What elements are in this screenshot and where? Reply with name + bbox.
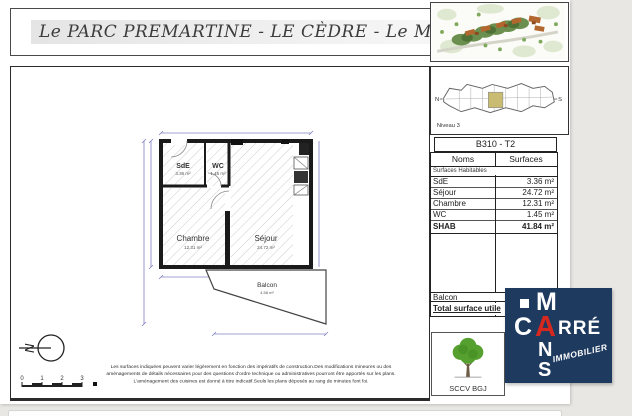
table-subheader: Surfaces Habitables	[431, 167, 557, 177]
logo-tagline: IMMOBILIER	[552, 342, 609, 364]
room-area-sejour: 24.72 m²	[257, 245, 275, 250]
room-area-balcon: 4.58 m²	[260, 290, 274, 295]
room-label-wc: WC	[212, 163, 224, 170]
table-row-shab: SHAB 41.84 m²	[431, 221, 557, 234]
scale-tick-3: 3	[80, 376, 84, 382]
wall-block	[281, 139, 289, 144]
floor-plan-drawing: SdE 3.36 m² WC 1.45 m² Chambre 12.31 m² …	[141, 119, 341, 349]
tree-logo-icon	[446, 335, 490, 381]
level-plan-box: N S Niveau 3	[430, 66, 569, 135]
scale-tick-2: 2	[60, 376, 64, 382]
row-name: SdE	[431, 177, 495, 187]
brand-logo-carre-mans: M C A RRÉ N IMMOBILIER S	[505, 288, 612, 383]
scale-tick-0: 0	[20, 376, 24, 382]
balcony-outline	[206, 270, 326, 324]
room-area-wc: 1.45 m²	[210, 171, 226, 176]
unit-id-header: B310 - T2	[434, 137, 557, 152]
row-name: WC	[431, 210, 495, 220]
disclaimer-line-1: Les surfaces indiquées peuvent varier lé…	[86, 363, 416, 370]
room-label-chambre: Chambre	[177, 234, 210, 243]
level-plan-drawing: N S Niveau 3	[431, 67, 566, 132]
logo-letters-rre: RRÉ	[558, 318, 601, 340]
row-name: Séjour	[431, 188, 495, 198]
chambre-room-fill	[163, 188, 225, 265]
row-name: SHAB	[431, 221, 495, 233]
table-column-divider	[495, 153, 496, 166]
table-row: SdE 3.36 m²	[431, 177, 557, 188]
legal-disclaimer: Les surfaces indiquées peuvent varier lé…	[86, 363, 416, 385]
compass-n-label: N	[435, 97, 439, 103]
plan-sheet: SdE 3.36 m² WC 1.45 m² Chambre 12.31 m² …	[10, 66, 430, 401]
row-surface: 12.31 m²	[495, 199, 557, 209]
site-rendering-box	[430, 2, 569, 62]
room-label-balcon: Balcon	[257, 282, 277, 289]
row-surface: 41.84 m²	[495, 221, 557, 233]
table-header-row: Noms Surfaces	[431, 153, 557, 167]
developer-name: SCCV BGJ	[432, 384, 504, 393]
scale-tick-1: 1	[40, 376, 44, 382]
compass-s-label: S	[558, 97, 562, 103]
logo-letter-c: C	[514, 313, 532, 342]
col-header-noms: Noms	[431, 153, 495, 166]
logo-letter-s: S	[538, 359, 551, 382]
level-label: Niveau 3	[437, 123, 460, 129]
logo-square-icon	[520, 299, 529, 308]
north-letter: N	[22, 343, 37, 353]
table-row: Séjour 24.72 m²	[431, 188, 557, 199]
aerial-site-rendering	[431, 3, 566, 59]
wall-block	[231, 139, 243, 145]
disclaimer-line-3: L'aménagement des cuisines est donné à t…	[86, 377, 416, 384]
col-header-surfaces: Surfaces	[495, 153, 557, 166]
room-label-sejour: Séjour	[254, 234, 277, 243]
table-row: Chambre 12.31 m²	[431, 199, 557, 210]
row-surface: 1.45 m²	[495, 210, 557, 220]
room-label-sde: SdE	[176, 163, 190, 170]
row-name: Chambre	[431, 199, 495, 209]
table-row: WC 1.45 m²	[431, 210, 557, 221]
room-area-sde: 3.36 m²	[175, 171, 191, 176]
page-title: Le PARC PREMARTINE - LE CÈDRE - Le Mans	[31, 20, 471, 44]
row-surface: 3.36 m²	[495, 177, 557, 187]
row-surface: 24.72 m²	[495, 188, 557, 198]
tree-foliage	[453, 338, 484, 364]
highlighted-unit	[488, 92, 503, 108]
room-area-chambre: 12.31 m²	[184, 245, 202, 250]
kitchen-fixtures	[294, 143, 309, 195]
disclaimer-line-2: aménagements de détails nécessaires pour…	[86, 370, 416, 377]
north-arrow-icon: N	[19, 333, 71, 363]
next-page-edge	[8, 410, 562, 416]
developer-box: SCCV BGJ	[431, 332, 505, 396]
entrance-opening	[171, 137, 187, 145]
